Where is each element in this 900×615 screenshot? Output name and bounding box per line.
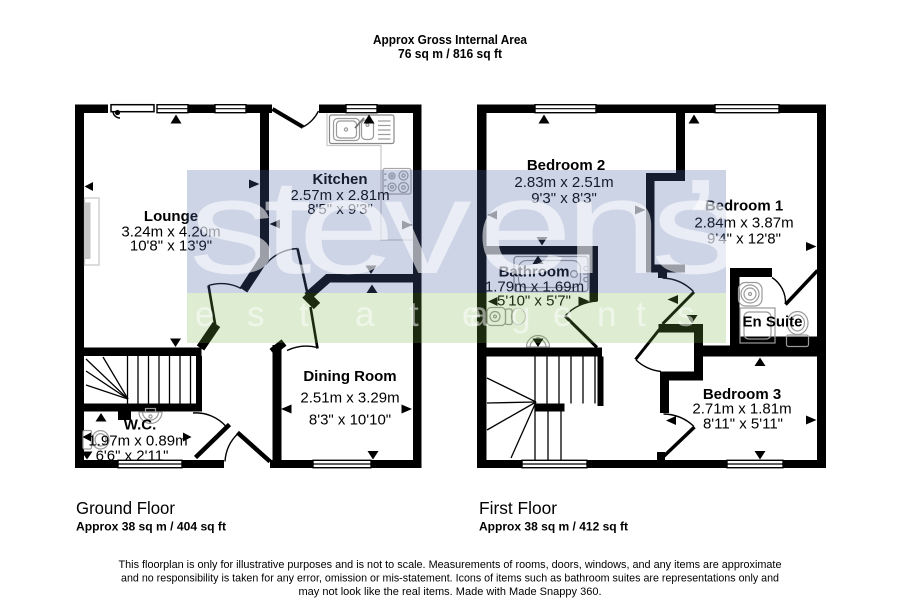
svg-text:Ground Floor: Ground Floor: [76, 498, 175, 518]
svg-text:8'11" x 5'11": 8'11" x 5'11": [703, 416, 783, 433]
svg-text:stevens’: stevens’: [189, 151, 739, 302]
svg-text:and no responsibility is taken: and no responsibility is taken for any e…: [121, 573, 779, 585]
svg-text:Approx 38 sq m / 404 sq ft: Approx 38 sq m / 404 sq ft: [76, 520, 226, 534]
svg-text:Dining Room: Dining Room: [303, 368, 396, 385]
svg-text:Approx Gross Internal Area: Approx Gross Internal Area: [373, 33, 528, 47]
svg-text:This floorplan is only for ill: This floorplan is only for illustrative …: [119, 559, 782, 571]
svg-text:Approx 38 sq m / 412 sq ft: Approx 38 sq m / 412 sq ft: [479, 520, 628, 534]
svg-text:W.C.: W.C.: [124, 417, 157, 434]
svg-text:may not look like the real ite: may not look like the real items. Made w…: [299, 586, 602, 598]
svg-text:2.51m x 3.29m: 2.51m x 3.29m: [300, 390, 399, 407]
svg-text:8'3" x 10'10": 8'3" x 10'10": [309, 412, 391, 429]
svg-text:En Suite: En Suite: [742, 314, 802, 331]
svg-text:First Floor: First Floor: [479, 498, 557, 518]
svg-text:76 sq m / 816 sq ft: 76 sq m / 816 sq ft: [398, 47, 503, 61]
svg-text:6'6" x 2'11": 6'6" x 2'11": [96, 448, 169, 465]
